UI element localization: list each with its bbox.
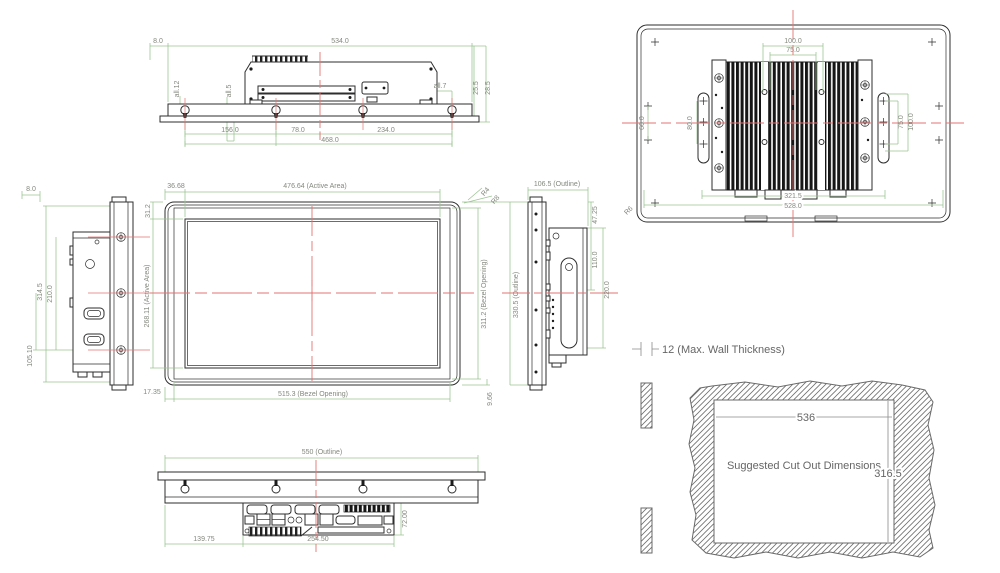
dim-label-bezel-offset-y: 9.66 xyxy=(487,392,494,406)
dim-label-bezel-height: 311.2 (Bezel Opening) xyxy=(481,259,488,329)
bottom-view-device xyxy=(158,472,485,536)
technical-drawing-canvas: 8.0 534.0 all.12 all.5 all.7 25.5 28.5 1… xyxy=(0,0,1000,573)
serial-port xyxy=(319,505,339,514)
dim-label-vesa-outer: 100.0 xyxy=(784,38,802,45)
wall-section-upper xyxy=(641,383,652,428)
dim-label-vesa-inner: 75.0 xyxy=(786,47,800,54)
dim-label-bezel-offset-x: 17.35 xyxy=(143,389,161,396)
dim-label-left-height: 314.5 xyxy=(37,283,44,301)
dim-label-top-offset: 8.0 xyxy=(153,38,163,45)
vesa-slot xyxy=(561,258,577,348)
label-wall-thickness: 12 (Max. Wall Thickness) xyxy=(662,344,785,356)
dim-label-active-width: 476.64 (Active Area) xyxy=(283,183,346,190)
dim-label-pitch: 220.0 xyxy=(604,281,611,299)
dim-label-left-pitch: 210.0 xyxy=(47,285,54,303)
dim-label-slot-right-outer: 100.0 xyxy=(908,113,915,131)
power-jack xyxy=(245,516,254,524)
dim-label-io-width: 254.50 xyxy=(307,536,329,543)
dim-label-outline-height: 330.5 (Outline) xyxy=(513,272,520,318)
dim-label-pitch-total: 468.0 xyxy=(321,137,339,144)
dim-label-left-pitch-half: 105.10 xyxy=(27,345,34,367)
right-side-view: 106.5 (Outline) 330.5 (Outline) 47.25 11… xyxy=(502,181,618,390)
ethernet-port xyxy=(320,514,333,525)
dim-label-outline-width: 550 (Outline) xyxy=(302,449,342,456)
dim-label-pitch-half: 110.0 xyxy=(592,251,599,268)
label-cutout-note: Suggested Cut Out Dimensions xyxy=(727,460,882,472)
dim-label-offset-top: 47.25 xyxy=(592,206,599,224)
dim-label-depth: 106.5 (Outline) xyxy=(534,181,580,188)
terminal-block xyxy=(384,516,393,524)
bottom-view: 550 (Outline) 139.75 254.50 72.00 xyxy=(158,449,485,552)
dim-label-corner-radius-r6: R6 xyxy=(623,205,634,216)
vent-grille xyxy=(249,527,301,536)
left-side-view: 8.0 314.5 210.0 105.10 xyxy=(22,186,150,390)
vent-strip xyxy=(344,505,390,512)
serial-port xyxy=(295,505,315,514)
cutout-detail: 12 (Max. Wall Thickness) 536 Suggested C… xyxy=(632,342,935,558)
mounting-rails xyxy=(258,86,355,101)
dim-label-bezel-width: 515.3 (Bezel Opening) xyxy=(278,391,348,398)
front-view-device xyxy=(165,202,460,385)
dim-label-slot-left: 80.0 xyxy=(687,116,694,130)
top-view: 8.0 534.0 all.12 all.5 all.7 25.5 28.5 1… xyxy=(150,38,492,147)
dim-label-io-offset: 139.75 xyxy=(193,536,215,543)
dim-label-slot-right-inner: 75.0 xyxy=(898,115,905,129)
dim-label-note-right: all.7 xyxy=(434,83,447,90)
dim-label-io-depth: 72.00 xyxy=(402,510,409,528)
dim-label-left-offset: 60.0 xyxy=(639,116,646,130)
dvi-port xyxy=(358,516,382,525)
dim-label-active-offset-x: 36.68 xyxy=(167,183,185,190)
dim-label-cutout-width: 536 xyxy=(797,412,815,424)
dim-label-note-left: all.12 xyxy=(174,81,181,98)
dim-label-pitch1: 156.0 xyxy=(221,127,239,134)
dim-label-top-overall: 534.0 xyxy=(331,38,349,45)
dim-label-note-mid: all.5 xyxy=(226,84,233,97)
front-view: 36.68 476.64 (Active Area) 31.2 268.11 (… xyxy=(143,183,527,406)
dim-label-heatsink-width: 321.5 xyxy=(784,193,802,200)
top-view-device xyxy=(160,56,479,122)
wall-thickness-indicator xyxy=(632,342,659,553)
rear-heatsink xyxy=(722,62,866,199)
dim-label-total-thickness: 28.5 xyxy=(485,81,492,95)
wall-section-lower xyxy=(641,508,652,553)
dim-label-pitch3: 234.0 xyxy=(377,127,395,134)
dim-label-pitch2: 78.0 xyxy=(291,127,305,134)
expansion-slot xyxy=(318,527,384,533)
dim-label-active-height: 268.11 (Active Area) xyxy=(144,265,151,328)
right-view-device xyxy=(528,197,587,390)
vga-port xyxy=(336,516,355,524)
dim-label-bezel-thickness: 25.5 xyxy=(473,81,480,95)
serial-port xyxy=(247,505,267,514)
dim-label-left-offset-top: 8.0 xyxy=(26,186,36,193)
dim-label-cutout-height: 316.5 xyxy=(874,468,902,480)
left-view-device xyxy=(70,197,133,390)
rear-view: 100.0 75.0 60.0 80.0 75.0 100.0 321.5 52… xyxy=(622,10,964,237)
dim-label-active-offset-y: 31.2 xyxy=(145,204,152,218)
serial-port xyxy=(271,505,291,514)
dim-label-body-width: 528.0 xyxy=(784,203,802,210)
